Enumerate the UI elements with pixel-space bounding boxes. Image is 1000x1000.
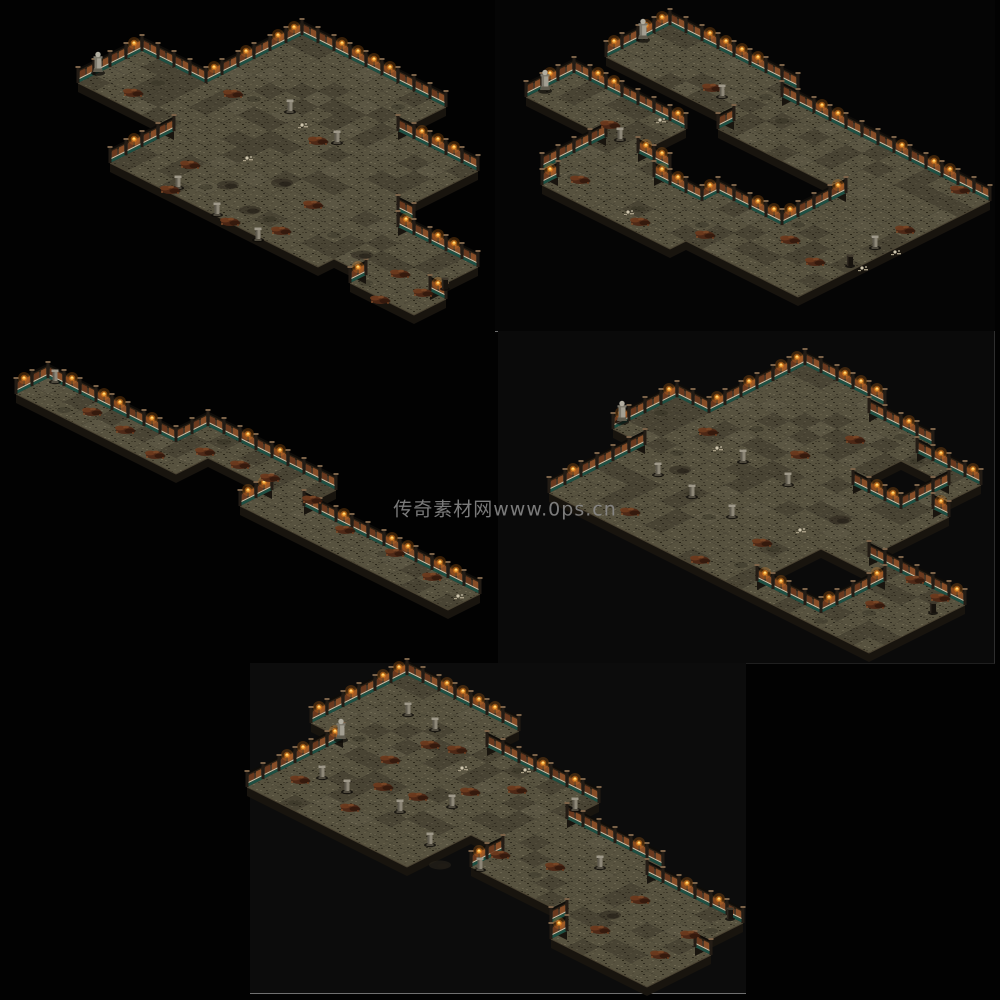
dirt xyxy=(829,516,851,525)
screenshot-canvas: 传奇素材网www.0ps.cn xyxy=(0,0,1000,1000)
dirt xyxy=(669,466,691,475)
map-image-2[interactable] xyxy=(524,8,993,306)
dirt xyxy=(239,206,261,215)
dirt xyxy=(599,911,621,920)
map-image-5[interactable] xyxy=(245,658,746,996)
dirt xyxy=(351,251,373,260)
dirt xyxy=(217,181,239,190)
dirt xyxy=(271,179,293,188)
dirt xyxy=(429,861,451,870)
watermark-text: 传奇素材网www.0ps.cn xyxy=(393,495,617,522)
map-image-1[interactable] xyxy=(76,18,481,324)
map-image-1-floor xyxy=(78,35,478,315)
map-image-3[interactable] xyxy=(14,361,483,619)
